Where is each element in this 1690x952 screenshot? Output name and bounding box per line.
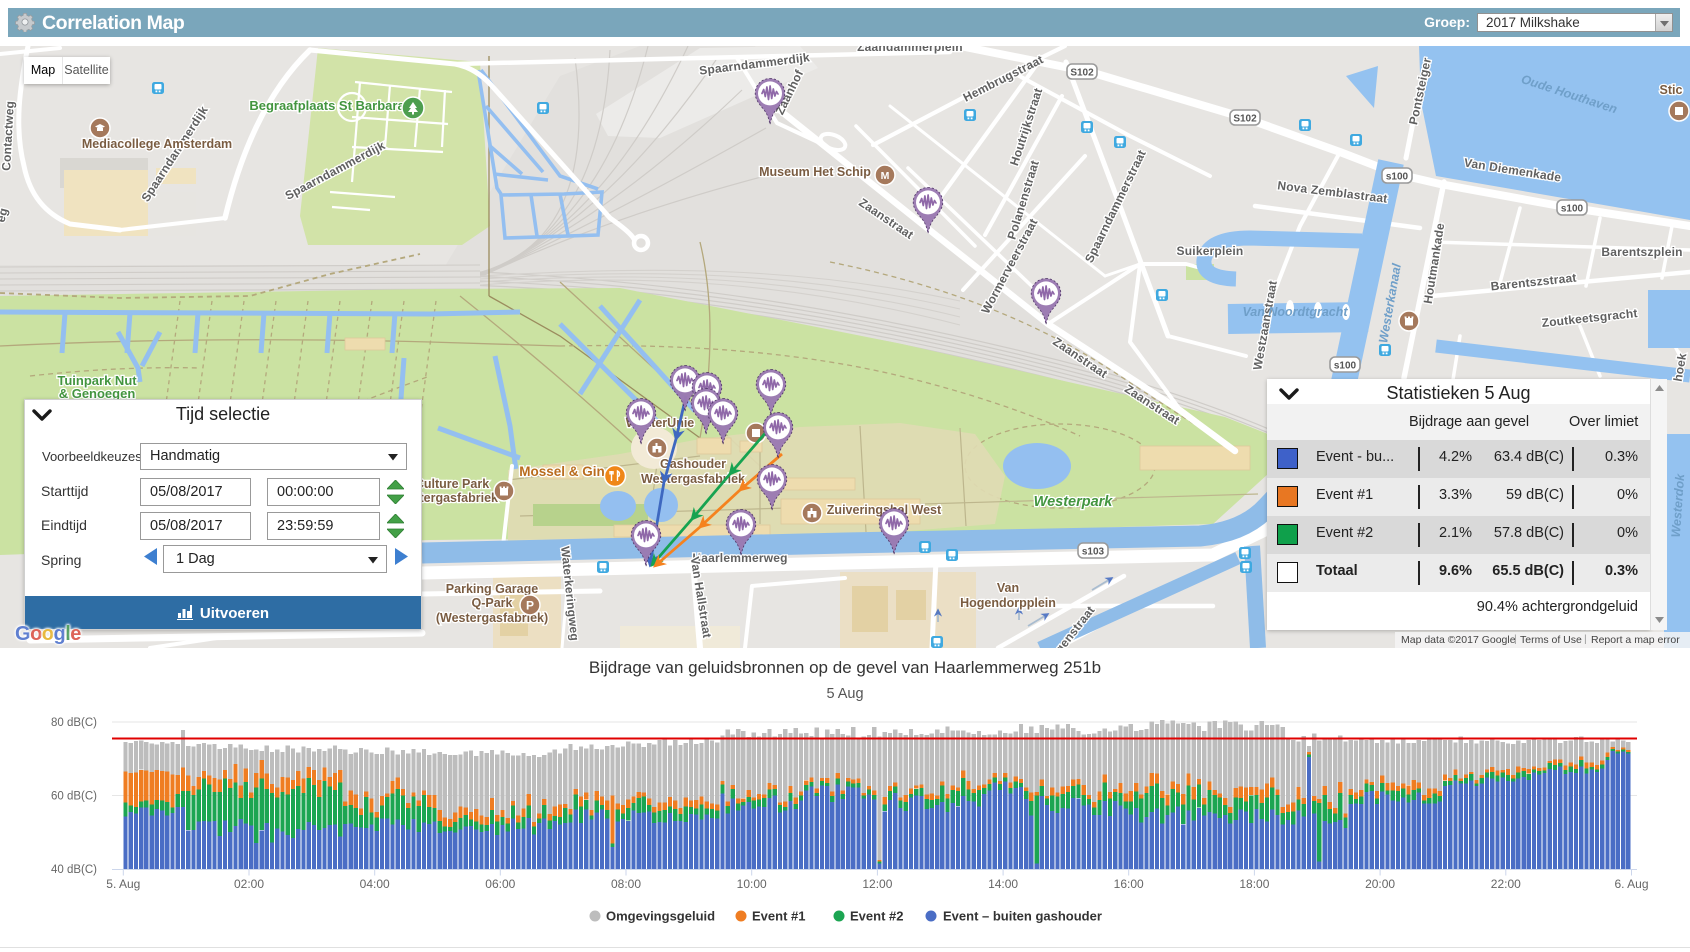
svg-text:Barentszplein: Barentszplein	[1601, 245, 1682, 259]
svg-text:10:00: 10:00	[737, 877, 767, 891]
svg-text:5 Aug: 5 Aug	[826, 686, 863, 702]
svg-text:Stic: Stic	[1660, 83, 1683, 97]
svg-text:S102: S102	[1070, 68, 1094, 79]
svg-text:22:00: 22:00	[1491, 877, 1521, 891]
svg-text:s100: s100	[1386, 172, 1409, 183]
svg-text:04:00: 04:00	[360, 877, 390, 891]
svg-text:s100: s100	[1561, 204, 1584, 215]
svg-text:Bijdrage van geluidsbronnen op: Bijdrage van geluidsbronnen op de gevel …	[589, 658, 1101, 677]
svg-text:Culture Park: Culture Park	[415, 477, 489, 491]
svg-text:Hogendorpplein: Hogendorpplein	[960, 596, 1056, 610]
svg-text:Parking Garage: Parking Garage	[446, 582, 538, 596]
svg-text:s103: s103	[1082, 547, 1105, 558]
svg-text:M: M	[881, 170, 890, 182]
svg-text:Haarlemmerweg: Haarlemmerweg	[692, 551, 787, 565]
svg-text:Westerpark: Westerpark	[1034, 494, 1114, 510]
svg-text:Van Noordtgracht: Van Noordtgracht	[1242, 305, 1348, 319]
svg-text:40 dB(C): 40 dB(C)	[51, 864, 97, 876]
svg-text:02:00: 02:00	[234, 877, 264, 891]
svg-text:80 dB(C): 80 dB(C)	[51, 717, 97, 729]
svg-text:s100: s100	[1334, 361, 1357, 372]
svg-text:20:00: 20:00	[1365, 877, 1395, 891]
svg-text:Suikerplein: Suikerplein	[1177, 244, 1244, 258]
svg-text:08:00: 08:00	[611, 877, 641, 891]
svg-text:Mediacollege Amsterdam: Mediacollege Amsterdam	[82, 137, 232, 151]
svg-text:Event – buiten gashouder: Event – buiten gashouder	[943, 909, 1102, 924]
svg-text:Begraafplaats St Barbara: Begraafplaats St Barbara	[249, 98, 405, 113]
svg-text:06:00: 06:00	[485, 877, 515, 891]
svg-text:12:00: 12:00	[862, 877, 892, 891]
svg-text:Museum Het Schip: Museum Het Schip	[759, 165, 871, 179]
svg-text:Van: Van	[997, 581, 1019, 595]
svg-text:Omgevingsgeluid: Omgevingsgeluid	[606, 909, 715, 924]
svg-text:6. Aug: 6. Aug	[1614, 877, 1648, 891]
svg-text:Event #1: Event #1	[752, 909, 805, 924]
svg-text:14:00: 14:00	[988, 877, 1018, 891]
svg-text:18:00: 18:00	[1239, 877, 1269, 891]
svg-text:5. Aug: 5. Aug	[106, 877, 140, 891]
svg-text:Event #2: Event #2	[850, 909, 903, 924]
svg-text:60 dB(C): 60 dB(C)	[51, 791, 97, 803]
svg-text:P: P	[526, 599, 534, 613]
svg-text:S102: S102	[1233, 114, 1257, 125]
svg-text:Zaandammerplein: Zaandammerplein	[857, 46, 963, 54]
svg-text:Mossel & Gin: Mossel & Gin	[519, 464, 605, 479]
svg-text:16:00: 16:00	[1114, 877, 1144, 891]
svg-text:Q-Park: Q-Park	[472, 596, 513, 610]
